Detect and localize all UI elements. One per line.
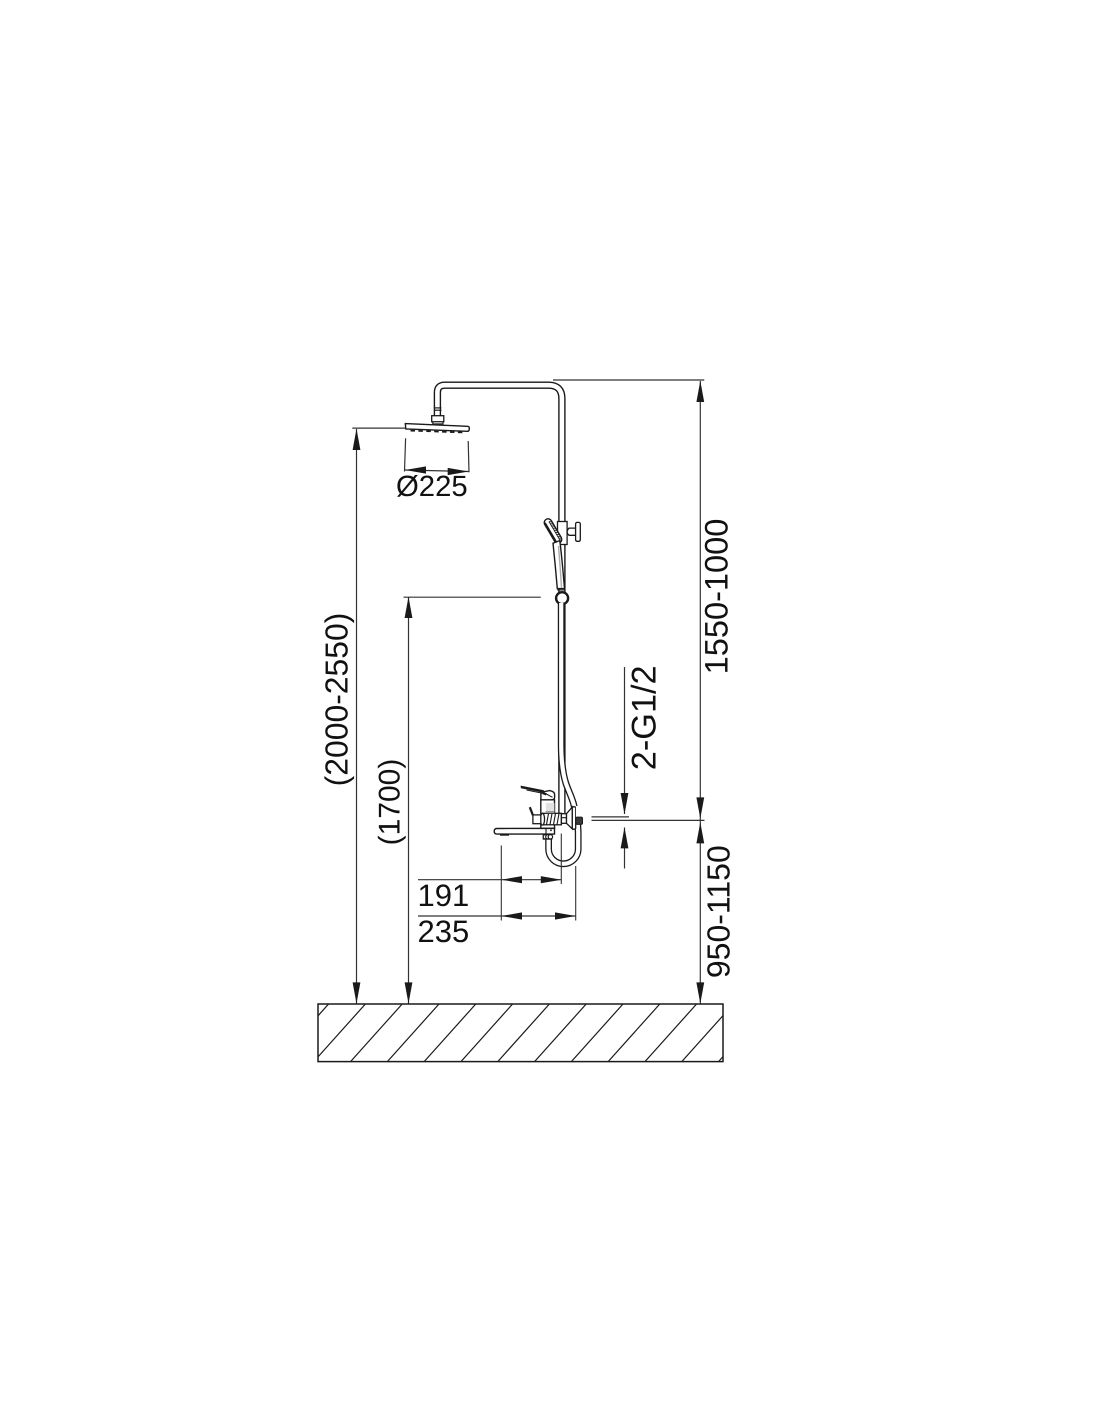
svg-text:(2000-2550): (2000-2550) bbox=[318, 613, 354, 787]
svg-text:191: 191 bbox=[418, 878, 470, 913]
svg-text:(1700): (1700) bbox=[374, 759, 407, 846]
svg-text:Ø225: Ø225 bbox=[396, 470, 468, 503]
svg-text:235: 235 bbox=[418, 914, 470, 949]
svg-text:950-1150: 950-1150 bbox=[701, 845, 737, 978]
svg-text:1550-1000: 1550-1000 bbox=[698, 519, 735, 675]
svg-text:2-G1/2: 2-G1/2 bbox=[626, 665, 664, 770]
